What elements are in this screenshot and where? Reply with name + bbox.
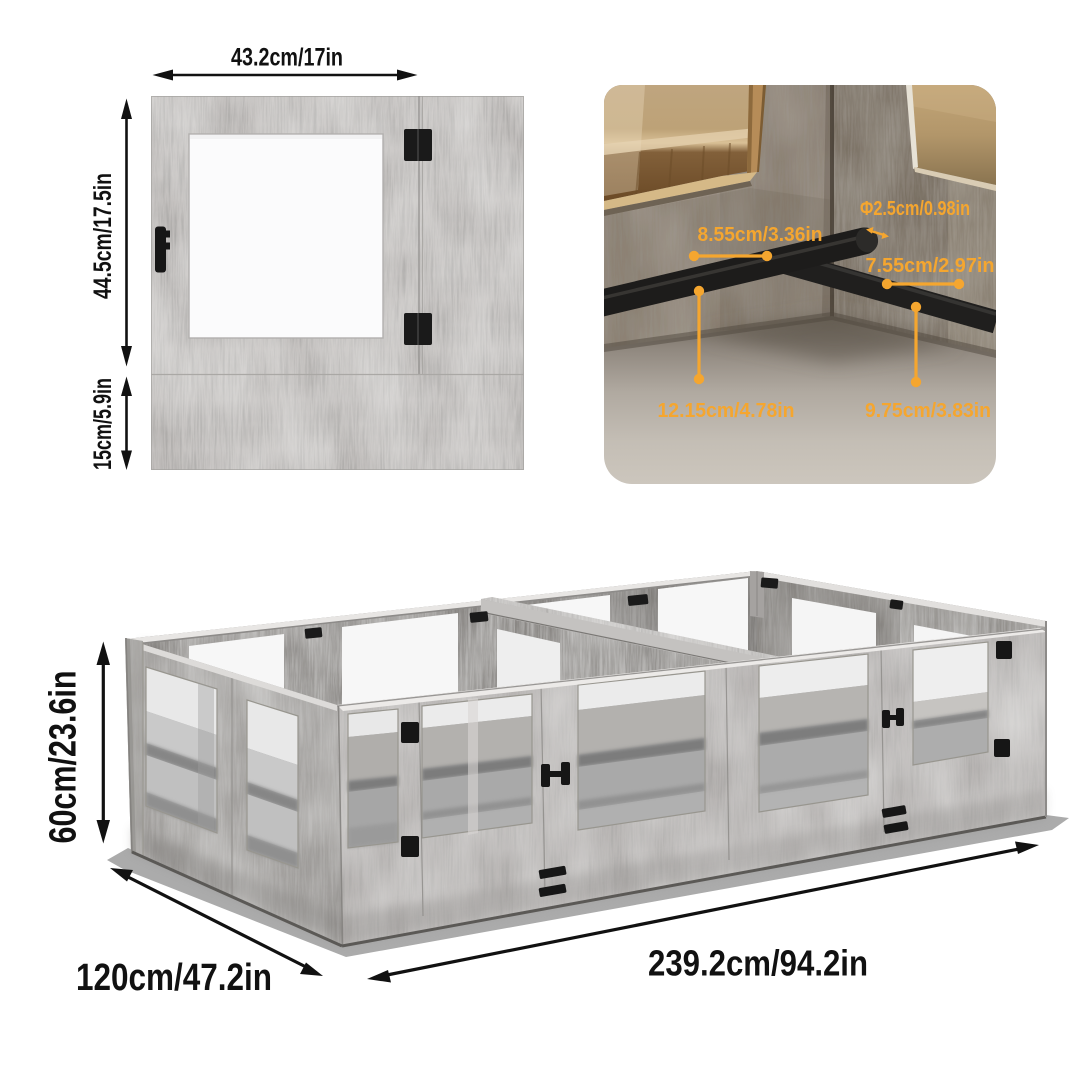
svg-text:Φ2.5cm/0.98in: Φ2.5cm/0.98in (860, 198, 970, 220)
svg-text:239.2cm/94.2in: 239.2cm/94.2in (648, 943, 868, 984)
svg-text:15cm/5.9in: 15cm/5.9in (89, 378, 117, 470)
svg-text:12.15cm/4.78in: 12.15cm/4.78in (658, 400, 795, 422)
svg-text:8.55cm/3.36in: 8.55cm/3.36in (698, 224, 823, 246)
svg-text:44.5cm/17.5in: 44.5cm/17.5in (89, 173, 117, 299)
svg-text:120cm/47.2in: 120cm/47.2in (76, 957, 272, 999)
svg-text:9.75cm/3.83in: 9.75cm/3.83in (865, 400, 991, 422)
svg-text:60cm/23.6in: 60cm/23.6in (43, 671, 85, 844)
svg-text:43.2cm/17in: 43.2cm/17in (231, 44, 343, 72)
svg-text:7.55cm/2.97in: 7.55cm/2.97in (866, 255, 995, 277)
